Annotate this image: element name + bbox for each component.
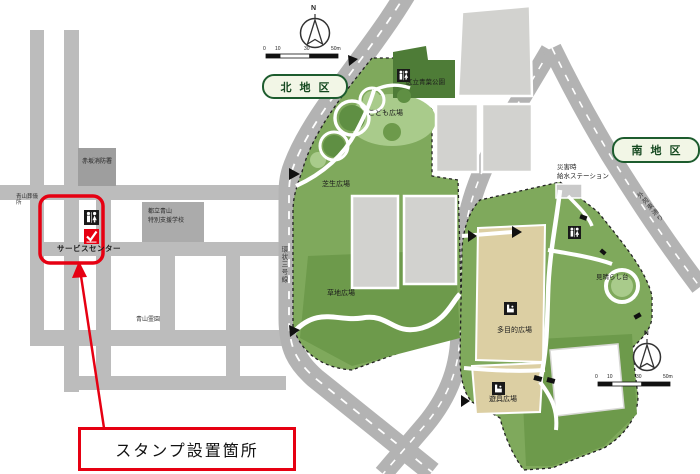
scale-tick: 30 xyxy=(304,46,310,52)
compass-icon xyxy=(301,14,330,48)
ring-road-label: 環状三号線 xyxy=(279,246,286,284)
multipurpose-plaza-area xyxy=(476,225,545,362)
school-label-line2: 特別支援学校 xyxy=(148,218,184,224)
scale-tick: 0 xyxy=(595,374,598,380)
south-park xyxy=(460,182,652,470)
scale-tick: 10 xyxy=(607,374,613,380)
south-district-label: 南地区 xyxy=(632,142,689,158)
playground-plaza-label: 遊具広場 xyxy=(489,396,517,403)
fire-station-building xyxy=(78,148,116,186)
compass-n-label: N xyxy=(644,330,649,337)
scale-tick: 10 xyxy=(275,46,281,52)
ward-park-label: 区立青葉公園 xyxy=(406,80,445,87)
disaster-station-label-line2: 給水ステーション xyxy=(557,174,609,181)
toilet-icon xyxy=(568,226,581,239)
school-label-line1: 都立青山 xyxy=(148,209,172,215)
service-center-label: サービスセンター xyxy=(57,245,121,253)
stamp-callout-box: スタンプ設置箇所 xyxy=(78,427,296,471)
map-canvas: 赤坂消防署 青山葬儀所 サービスセンター 都立青山 特別支援学校 青山霊園 北地… xyxy=(0,0,700,474)
compass-n-label: N xyxy=(311,5,316,12)
fire-station-label: 赤坂消防署 xyxy=(82,159,112,165)
scale-tick: 30 xyxy=(636,374,642,380)
scale-bar xyxy=(266,54,338,58)
kids-plaza-label: こども広場 xyxy=(368,110,403,117)
scale-tick: 50m xyxy=(331,46,341,52)
drinking-fountain-icon xyxy=(504,302,517,315)
map-graphics xyxy=(0,0,700,474)
north-district-label: 北地区 xyxy=(281,79,338,95)
cemetery-label: 青山霊園 xyxy=(136,317,160,323)
funeral-hall-label: 青山葬儀所 xyxy=(16,195,40,207)
grass-plaza-label: 草地広場 xyxy=(327,290,355,297)
scale-tick: 0 xyxy=(263,46,266,52)
scale-bar xyxy=(598,382,670,386)
scale-tick: 50m xyxy=(663,374,673,380)
drinking-fountain-icon xyxy=(492,382,505,395)
stamp-callout-label: スタンプ設置箇所 xyxy=(115,437,259,461)
lawn-plaza-label: 芝生広場 xyxy=(322,181,350,188)
north-district-badge: 北地区 xyxy=(262,74,348,99)
toilet-icon xyxy=(84,210,99,225)
disaster-station-label-line1: 災害時 xyxy=(557,165,577,172)
south-district-badge: 南地区 xyxy=(612,137,700,163)
open-field-block xyxy=(550,344,624,416)
compass-icon xyxy=(634,339,661,371)
multipurpose-plaza-label: 多目的広場 xyxy=(497,327,532,334)
viewpoint-label: 見晴らし台 xyxy=(596,275,629,282)
stamp-check-icon xyxy=(84,229,99,244)
